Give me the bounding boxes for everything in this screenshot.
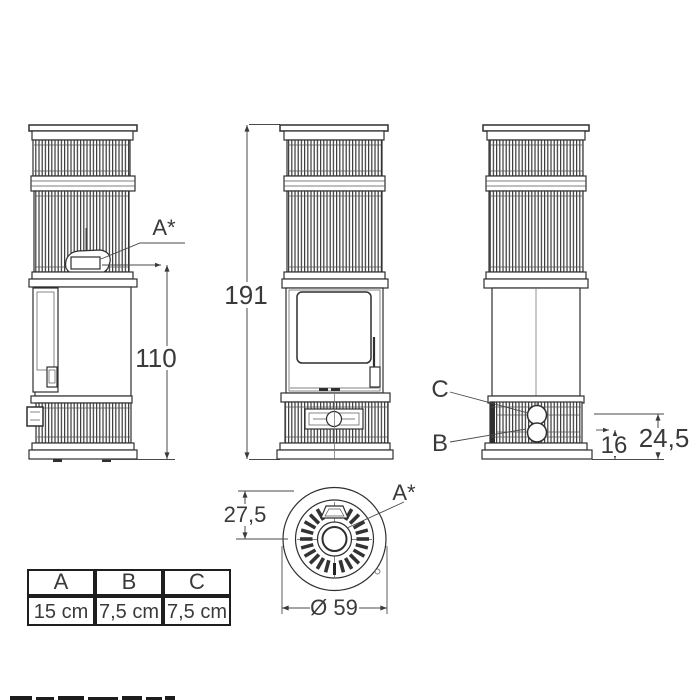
- left-ring-molding: [31, 176, 135, 191]
- cropped-logo-strip: [10, 696, 175, 700]
- left-plinth-1: [32, 443, 134, 450]
- back-cap-top: [483, 125, 589, 131]
- dim-total-height: 191: [224, 125, 280, 460]
- table-header-a: A: [54, 569, 69, 594]
- table-header-c: C: [189, 569, 205, 594]
- left-cap-top: [29, 125, 137, 131]
- back-plinth-1: [485, 443, 587, 450]
- rim-detail-circle: [375, 569, 380, 574]
- front-ledge: [281, 393, 390, 402]
- table-header-b: B: [122, 569, 137, 594]
- stove-dimension-drawing: A* 110 191: [0, 0, 700, 700]
- left-plinth-2: [29, 450, 137, 459]
- b-label: B: [432, 430, 448, 457]
- left-lower-molding-1: [32, 272, 133, 279]
- front-fluted-band-1: [287, 140, 382, 176]
- dim-16-text: 16: [601, 432, 628, 459]
- back-fluted-band-1: [489, 140, 583, 176]
- dim-27-5-text: 27,5: [224, 502, 267, 527]
- dim-diameter-text: Ø 59: [310, 595, 358, 620]
- side-flue-collar: [71, 257, 100, 269]
- front-fluted-band-2: [287, 191, 382, 272]
- back-lower-molding-1: [486, 272, 586, 279]
- table-value-c: 7,5 cm: [167, 601, 227, 623]
- left-lower-molding-2: [29, 279, 137, 287]
- back-fluted-band-2: [489, 191, 583, 272]
- back-cap-band: [487, 131, 585, 140]
- a-star-label-side: A*: [152, 215, 176, 240]
- dim-24-5-text: 24,5: [639, 423, 690, 453]
- front-lower-molding-2: [282, 279, 388, 288]
- table-value-a: 15 cm: [34, 601, 88, 623]
- table-value-b: 7,5 cm: [99, 601, 159, 623]
- front-plinth-2: [277, 450, 393, 459]
- front-cap-band: [284, 131, 384, 140]
- a-star-label-top: A*: [392, 480, 416, 505]
- left-foot-1: [53, 459, 62, 462]
- top-view: [283, 488, 386, 591]
- back-view: [482, 125, 592, 459]
- left-base-ring: [31, 396, 132, 403]
- door-handle-grip: [370, 367, 380, 387]
- dim-191-text: 191: [224, 280, 267, 310]
- rear-outlet-c: [528, 406, 547, 425]
- front-ring-molding: [284, 176, 385, 191]
- front-plinth-1: [280, 443, 390, 450]
- c-label: C: [431, 376, 448, 403]
- technical-drawing-canvas: A* 110 191: [0, 0, 700, 700]
- dim-rear-outlets: 24,5 16: [592, 414, 690, 460]
- flue-hole-circle: [323, 527, 347, 551]
- left-cap-band: [32, 131, 133, 140]
- front-cap-top: [280, 125, 388, 131]
- front-lower-molding-1: [284, 272, 385, 279]
- door-glass: [297, 292, 371, 363]
- ash-drawer-knob: [327, 412, 342, 427]
- back-plinth-2: [482, 450, 592, 459]
- ash-latch: [27, 407, 43, 426]
- rear-outlet-b: [528, 423, 547, 442]
- back-ring-molding: [486, 176, 586, 191]
- back-lower-molding-2: [484, 279, 588, 288]
- side-view-left: [27, 125, 137, 462]
- dim-110-text: 110: [135, 343, 176, 373]
- spec-table: A B C 15 cm 7,5 cm 7,5 cm: [28, 569, 230, 625]
- left-fluted-band-1: [33, 140, 130, 176]
- front-view: [277, 125, 393, 459]
